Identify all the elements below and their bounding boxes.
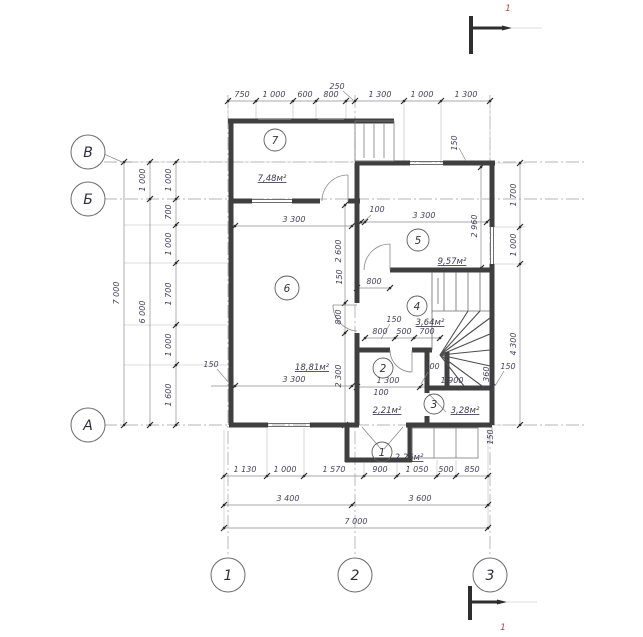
axis-bubble-label: 1 (224, 568, 233, 584)
dim-label: 100 (369, 205, 384, 214)
dim-label: 1 300 (455, 90, 478, 99)
dim-label: 2 960 (470, 215, 479, 238)
axis-bubble-label: Б (83, 192, 93, 208)
section-arrow-top (502, 26, 512, 31)
dim-label: 750 (234, 90, 249, 99)
dim-label: 800 (323, 90, 338, 99)
dim-label: 1 000 (164, 169, 173, 192)
dim-label: 500 (438, 465, 453, 474)
dim-label: 900 (372, 465, 387, 474)
dim-label: 1 000 (164, 334, 173, 357)
room-number: 5 (415, 235, 422, 247)
room-area: 9,57м² (438, 257, 467, 267)
dim-label: 1 570 (323, 465, 346, 474)
room-number: 3 (431, 399, 438, 411)
dim-label: 150 (450, 135, 459, 150)
room-area: 3,64м² (416, 318, 445, 328)
dim-label: 3 300 (413, 211, 436, 220)
room-number: 2 (380, 363, 387, 375)
dim-label: 800 (372, 327, 387, 336)
axis-bubble-label: 3 (486, 568, 495, 584)
dim-label: 6 000 (138, 301, 147, 324)
dim-label: 150 (386, 315, 401, 324)
dim-label: 7 000 (112, 282, 121, 305)
dim-label: 150 (500, 362, 515, 371)
dim-label: 3 400 (277, 494, 300, 503)
dim-label: 1 130 (234, 465, 257, 474)
dim-label: 1 000 (509, 234, 518, 257)
room-area: 7,48м² (258, 174, 287, 184)
dim-label: 1 050 (406, 465, 429, 474)
dim-label: 100 (424, 362, 439, 371)
dim-label: 2 300 (334, 365, 343, 388)
dim-label: 1 900 (441, 376, 464, 385)
dim-label: 1 000 (411, 90, 434, 99)
axis-bubble-label: В (83, 145, 93, 161)
dim-label: 150 (486, 429, 495, 444)
dim-label: 3 300 (283, 215, 306, 224)
dim-label: 1 600 (164, 384, 173, 407)
dim-label: 1 000 (138, 169, 147, 192)
section-arrow-bottom (497, 600, 507, 605)
room-number: 1 (379, 447, 386, 459)
dimension-labels: 750 1 000 600 800 1 300 1 000 1 300 250 … (112, 82, 518, 526)
dim-label: 3 300 (283, 375, 306, 384)
dim-label: 4 300 (509, 333, 518, 356)
axis-bubbles: В Б А 1 2 3 (71, 135, 507, 592)
dim-label: 1 300 (369, 90, 392, 99)
dim-callout-250: 250 (329, 82, 344, 91)
porch-steps-top (355, 121, 394, 161)
dim-label: 1 000 (164, 233, 173, 256)
dim-label: 700 (164, 204, 173, 219)
dim-label: 1 000 (274, 465, 297, 474)
dim-label: 1 000 (263, 90, 286, 99)
room-area: 2,21м² (373, 406, 402, 416)
floor-plan-drawing: 750 1 000 600 800 1 300 1 000 1 300 250 … (0, 0, 643, 637)
dim-label: 700 (419, 327, 434, 336)
room-area: 18,81м² (295, 363, 330, 373)
dim-label: 150 (203, 360, 218, 369)
dim-label: 1 360 (482, 367, 491, 390)
room-number: 4 (414, 301, 421, 313)
dim-label: 2 600 (334, 240, 343, 263)
dim-label: 500 (396, 327, 411, 336)
axis-bubble-label: А (82, 418, 93, 434)
dim-label: 800 (334, 309, 343, 324)
dim-label: 600 (297, 90, 312, 99)
dim-label: 3 600 (409, 494, 432, 503)
room-number: 7 (272, 135, 279, 147)
section-marks: 1 1 (470, 4, 542, 633)
axis-bubble-label: 2 (351, 568, 360, 584)
dim-label: 1 700 (509, 184, 518, 207)
dim-label: 1 700 (164, 283, 173, 306)
room-area: 3,28м² (451, 406, 480, 416)
section-label-top: 1 (505, 4, 511, 14)
dim-label: 7 000 (345, 517, 368, 526)
dim-label: 150 (335, 269, 344, 284)
dim-label: 100 (373, 388, 388, 397)
room-number: 6 (284, 283, 291, 295)
room-labels: 1 2,26м² 2 2,21м² 3 3,28м² 4 3,64м² 5 9,… (258, 129, 480, 463)
dim-label: 850 (464, 465, 479, 474)
floor-plan-page: 750 1 000 600 800 1 300 1 000 1 300 250 … (0, 0, 643, 637)
section-label-bottom: 1 (500, 623, 506, 633)
room-area: 2,26м² (395, 453, 424, 463)
dim-label: 800 (366, 277, 381, 286)
